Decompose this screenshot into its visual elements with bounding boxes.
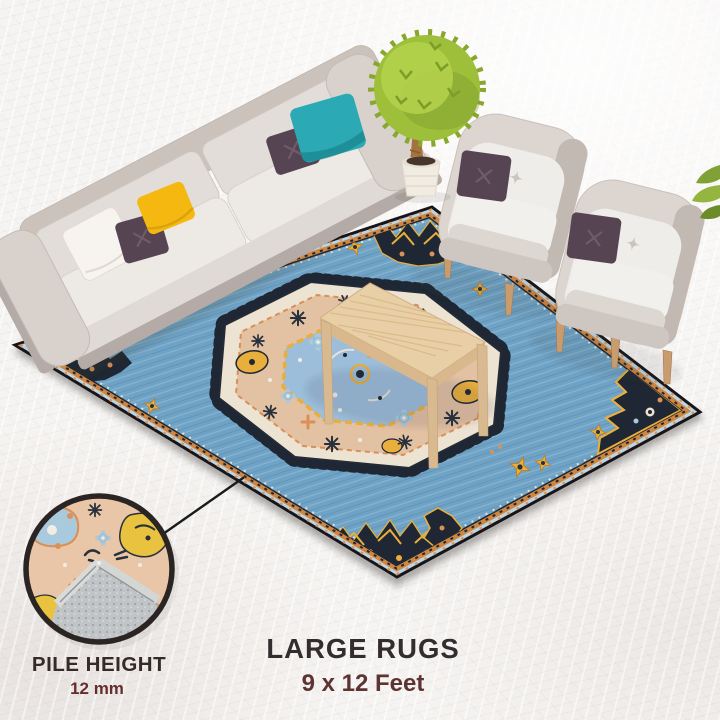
product-size: 9 x 12 Feet <box>302 670 425 697</box>
product-title: LARGE RUGS <box>266 633 459 664</box>
pile-height-value: 12 mm <box>70 679 124 698</box>
table-leg-front <box>427 378 438 468</box>
table-leg-right <box>477 344 488 436</box>
pile-height-inset <box>26 478 243 653</box>
product-image: PILE HEIGHT 12 mm LARGE RUGS 9 x 12 Feet <box>0 0 720 720</box>
scene-illustration: PILE HEIGHT 12 mm LARGE RUGS 9 x 12 Feet <box>0 0 720 720</box>
pile-height-label: PILE HEIGHT <box>32 653 166 676</box>
connector-line <box>163 478 243 534</box>
pot-soil <box>407 157 436 166</box>
armchair-pillow <box>456 150 512 203</box>
armchair-pillow-2 <box>566 212 622 265</box>
